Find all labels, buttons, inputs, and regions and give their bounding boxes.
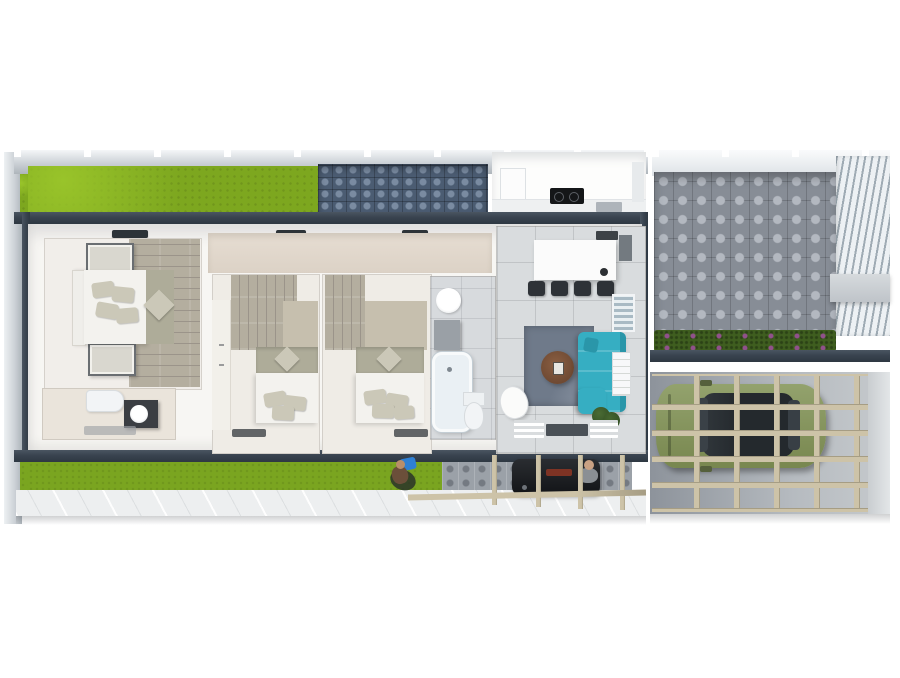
person-head xyxy=(584,460,594,470)
table-decor-icon xyxy=(553,362,564,375)
front-lawn xyxy=(28,166,320,214)
pergola-post xyxy=(536,455,541,507)
pillow xyxy=(394,405,415,419)
pergola-post xyxy=(578,455,583,509)
burner-icon xyxy=(569,192,579,202)
bedroom2-wood-light xyxy=(283,301,318,350)
kitchen xyxy=(492,152,646,214)
shower-mat xyxy=(84,426,136,435)
ceiling-vent-icon xyxy=(112,230,148,238)
grill-knob-icon xyxy=(522,485,527,490)
wall-art xyxy=(612,352,631,396)
tv-cabinet xyxy=(596,231,618,240)
bedside-rug xyxy=(394,429,428,437)
pergola-post xyxy=(620,455,625,510)
garage-right-wall xyxy=(868,372,890,514)
bathroom-toilet xyxy=(462,392,484,430)
north-wall xyxy=(14,212,648,224)
wardrobe xyxy=(212,300,231,430)
bathroom-cabinet xyxy=(434,320,460,350)
pillow xyxy=(372,404,394,419)
brick-privacy-wall xyxy=(318,164,488,214)
bar-stool xyxy=(551,281,568,296)
door-track xyxy=(546,424,588,436)
wardrobe-handle xyxy=(219,364,224,366)
ensuite-vanity xyxy=(124,400,158,428)
louver-ledge xyxy=(830,274,890,302)
person-on-lawn xyxy=(384,456,426,494)
tub-drain-icon xyxy=(447,367,452,372)
burner-icon xyxy=(554,192,564,202)
pillow xyxy=(272,405,295,420)
bar-stool xyxy=(528,281,545,296)
person-head xyxy=(396,460,405,469)
bathroom-basin xyxy=(436,288,461,313)
carport-pergola-grid xyxy=(652,374,868,512)
coffee-table xyxy=(541,351,574,384)
bedroom3-wood-light xyxy=(365,301,427,350)
vessel-sink xyxy=(130,405,148,423)
entry-mat xyxy=(514,420,544,438)
pillow xyxy=(115,307,138,324)
louver-screen xyxy=(836,156,890,336)
kitchen-wall-cabinet xyxy=(632,162,644,202)
wardrobe-handle xyxy=(219,344,224,346)
flowering-hedge xyxy=(654,330,836,352)
bedside-rug xyxy=(232,429,266,437)
window-blind xyxy=(612,294,635,332)
courtyard-south-wall xyxy=(650,350,890,362)
bedroom3-wood-floor xyxy=(325,275,365,350)
pillow xyxy=(111,286,134,303)
entry-mat xyxy=(590,420,618,438)
island-sink-icon xyxy=(600,268,608,276)
garage-shadow xyxy=(650,514,890,524)
back-lawn xyxy=(28,462,442,492)
cooktop xyxy=(550,188,584,204)
kitchen-appliance xyxy=(596,202,622,212)
bedroom-chair xyxy=(88,343,136,376)
garage xyxy=(650,372,890,514)
hallway-floor xyxy=(208,233,492,273)
courtyard-paver-wall xyxy=(654,172,838,334)
toilet-bowl xyxy=(464,402,484,430)
grill-ember-icon xyxy=(546,469,572,476)
bar-stool xyxy=(574,281,591,296)
wall-unit xyxy=(619,235,632,261)
house-shadow xyxy=(16,516,646,525)
sofa-cushion xyxy=(583,337,599,353)
ensuite-toilet xyxy=(86,390,124,412)
floorplan-render xyxy=(0,0,900,678)
